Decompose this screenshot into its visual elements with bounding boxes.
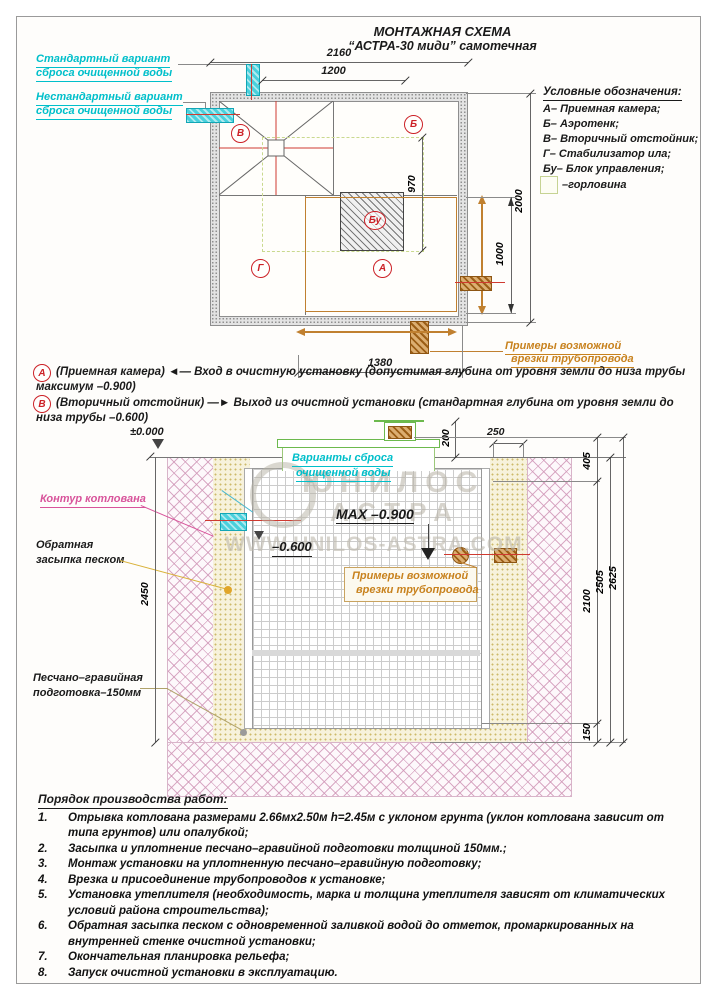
- work-order-item: 2. Засыпка и уплотнение песчано–гравийно…: [38, 842, 688, 858]
- standard-outfall-label-line1: Стандартный вариант: [36, 53, 170, 68]
- outlet-level-label: –0.600: [272, 540, 312, 557]
- vent-filter: [388, 426, 412, 439]
- zero-level-label: ±0.000: [130, 426, 164, 439]
- discharge-options-line2: очищенной воды: [296, 467, 391, 482]
- section-inlet-pipe: [220, 513, 247, 531]
- ext-line: [466, 313, 516, 314]
- plan-pipe-note-leader: [430, 351, 503, 352]
- note-b-marker: В: [33, 395, 51, 413]
- note-b-line1: (Вторичный отстойник) —► Выход из очистн…: [56, 397, 674, 410]
- work-order-item: 1. Отрывка котлована размерами 2.66мх2.5…: [38, 811, 688, 842]
- sand-gravel-prep: [213, 727, 527, 742]
- gorlovina-symbol: [540, 176, 558, 194]
- drawing-title: МОНТАЖНАЯ СХЕМА: [325, 25, 560, 40]
- item-number: 3.: [38, 857, 68, 873]
- dim-2000: 2000: [513, 179, 525, 223]
- work-order-item: 6. Обратная засыпка песком с одновременн…: [38, 919, 688, 950]
- plan-inlet-axis-left: [186, 114, 240, 115]
- item-text: Установка утеплителя (необходимость, мар…: [68, 888, 688, 919]
- backfill-leader-dot: [224, 586, 232, 594]
- legend-item-bu: Бу– Блок управления;: [543, 163, 665, 176]
- note-b-line2: низа трубы –0.600): [36, 412, 148, 425]
- prep-leader-dot: [240, 729, 247, 736]
- dim-1200: 1200: [262, 65, 405, 78]
- dim-line-1200: [262, 80, 405, 81]
- dim-2450: 2450: [139, 572, 151, 616]
- note-a-line1: (Приемная камера) ◄— Вход в очистную уст…: [56, 366, 685, 379]
- work-order-heading: Порядок производства работ:: [38, 793, 228, 809]
- dim-line-2625: [623, 437, 624, 742]
- pit-hatch-bottom: [167, 742, 572, 797]
- work-order-item: 7. Окончательная планировка рельефа;: [38, 950, 688, 966]
- dim-405: 405: [581, 439, 593, 483]
- dim-2100: 2100: [581, 579, 593, 623]
- dim-line-250: [493, 443, 523, 444]
- dim-line-200: [455, 421, 456, 457]
- prep-label-line2: подготовка–150мм: [33, 687, 141, 700]
- dim-line-2160: [210, 62, 468, 63]
- pit-contour-label: Контур котлована: [40, 493, 146, 508]
- discharge-options-line1: Варианты сброса: [292, 452, 393, 467]
- level-mark-icon: [254, 531, 264, 540]
- backfill-label-line2: засыпка песком: [36, 554, 124, 567]
- dim-line-1000: [511, 197, 512, 313]
- arrow-up-icon: [508, 197, 514, 206]
- marker-g: Г: [251, 259, 270, 278]
- plan-orange-arrow-line-bottom: [300, 331, 452, 333]
- max-level-label: MAX –0.900: [336, 506, 414, 524]
- item-number: 2.: [38, 842, 68, 858]
- item-number: 6.: [38, 919, 68, 950]
- plan-inlet-stub-top: [246, 64, 260, 96]
- dim-2160: 2160: [210, 47, 468, 60]
- plan-inlet-axis-top: [251, 64, 252, 100]
- item-number: 1.: [38, 811, 68, 842]
- note-a-marker: А: [33, 364, 51, 382]
- item-number: 5.: [38, 888, 68, 919]
- dim-150: 150: [581, 710, 593, 754]
- dim-2505: 2505: [594, 560, 606, 604]
- work-order-item: 4. Врезка и присоединение трубопроводов …: [38, 873, 688, 889]
- montage-scheme-drawing: МОНТАЖНАЯ СХЕМА “АСТРА-30 миди” самотечн…: [0, 0, 716, 999]
- work-order-item: 3. Монтаж установки на уплотненную песча…: [38, 857, 688, 873]
- item-text: Окончательная планировка рельефа;: [68, 950, 688, 966]
- item-text: Отрывка котлована размерами 2.66мх2.50м …: [68, 811, 688, 842]
- plan-inlet-stub-left: [186, 108, 234, 123]
- arrow-right-icon: [448, 328, 457, 336]
- nonstandard-leader-line: [183, 102, 205, 103]
- dim-line-970: [422, 137, 423, 250]
- plan-pipe-axis-right: [455, 282, 505, 283]
- dim-200: 200: [440, 416, 452, 460]
- item-number: 4.: [38, 873, 68, 889]
- section-pipe-note-line1: Примеры возможной: [352, 570, 468, 583]
- item-text: Обратная засыпка песком с одновременной …: [68, 919, 688, 950]
- plan-pipe-penetration-bottom: [410, 321, 429, 354]
- legend-item-b: Б– Аэротенк;: [543, 118, 619, 131]
- arrow-down-icon: [508, 304, 514, 313]
- legend-item-g: Г– Стабилизатор ила;: [543, 148, 671, 161]
- dim-970: 970: [406, 162, 418, 206]
- ext-line: [466, 322, 536, 323]
- marker-b: Б: [404, 115, 423, 134]
- tank-internal-shelf: [252, 650, 480, 656]
- nonstandard-outfall-label-line2: сброса очищенной воды: [36, 105, 172, 120]
- ext-line: [466, 93, 536, 94]
- nonstandard-outfall-label-line1: Нестандартный вариант: [36, 91, 183, 106]
- watermark-url: WWW.UNILOS-ASTRA.COM: [225, 533, 523, 557]
- note-a-line2: максимум –0.900): [36, 381, 136, 394]
- legend-gorlovina-label: –горловина: [562, 179, 627, 192]
- standard-leader-line: [178, 64, 248, 65]
- max-level-drop: [428, 524, 429, 548]
- dim-line-2450: [155, 457, 156, 742]
- item-number: 8.: [38, 966, 68, 982]
- ext-line: [493, 443, 494, 457]
- backfill-label-line1: Обратная: [36, 539, 93, 552]
- prep-leader-h: [140, 688, 168, 689]
- item-text: Засыпка и уплотнение песчано–гравийной п…: [68, 842, 688, 858]
- marker-v: В: [231, 124, 250, 143]
- standard-outfall-label-line2: сброса очищенной воды: [36, 67, 172, 82]
- marker-bu: Бу: [364, 211, 386, 230]
- section-pipe-note-line2: врезки трубопровода: [356, 584, 479, 597]
- legend-heading: Условные обозначения:: [543, 86, 682, 101]
- work-order-item: 8. Запуск очистной установки в эксплуата…: [38, 966, 688, 982]
- sand-backfill-right: [490, 457, 527, 742]
- plan-pipe-penetration-right: [460, 276, 492, 291]
- legend-item-v: В– Вторичный отстойник;: [543, 133, 698, 146]
- marker-a: А: [373, 259, 392, 278]
- prep-label-line1: Песчано–гравийная: [33, 672, 143, 685]
- item-text: Врезка и присоединение трубопроводов к у…: [68, 873, 688, 889]
- arrow-left-icon: [296, 328, 305, 336]
- ext-line: [414, 437, 626, 438]
- dim-2625: 2625: [607, 556, 619, 600]
- dim-1000: 1000: [494, 232, 506, 276]
- level-mark-filled-icon: [421, 548, 435, 560]
- level-mark-icon: [152, 439, 164, 449]
- item-text: Запуск очистной установки в эксплуатацию…: [68, 966, 688, 982]
- work-order-item: 5. Установка утеплителя (необходимость, …: [38, 888, 688, 919]
- dim-line-2000: [530, 93, 531, 322]
- item-number: 7.: [38, 950, 68, 966]
- item-text: Монтаж установки на уплотненную песчано–…: [68, 857, 688, 873]
- legend-item-a: А– Приемная камера;: [543, 103, 661, 116]
- ext-line: [523, 443, 524, 457]
